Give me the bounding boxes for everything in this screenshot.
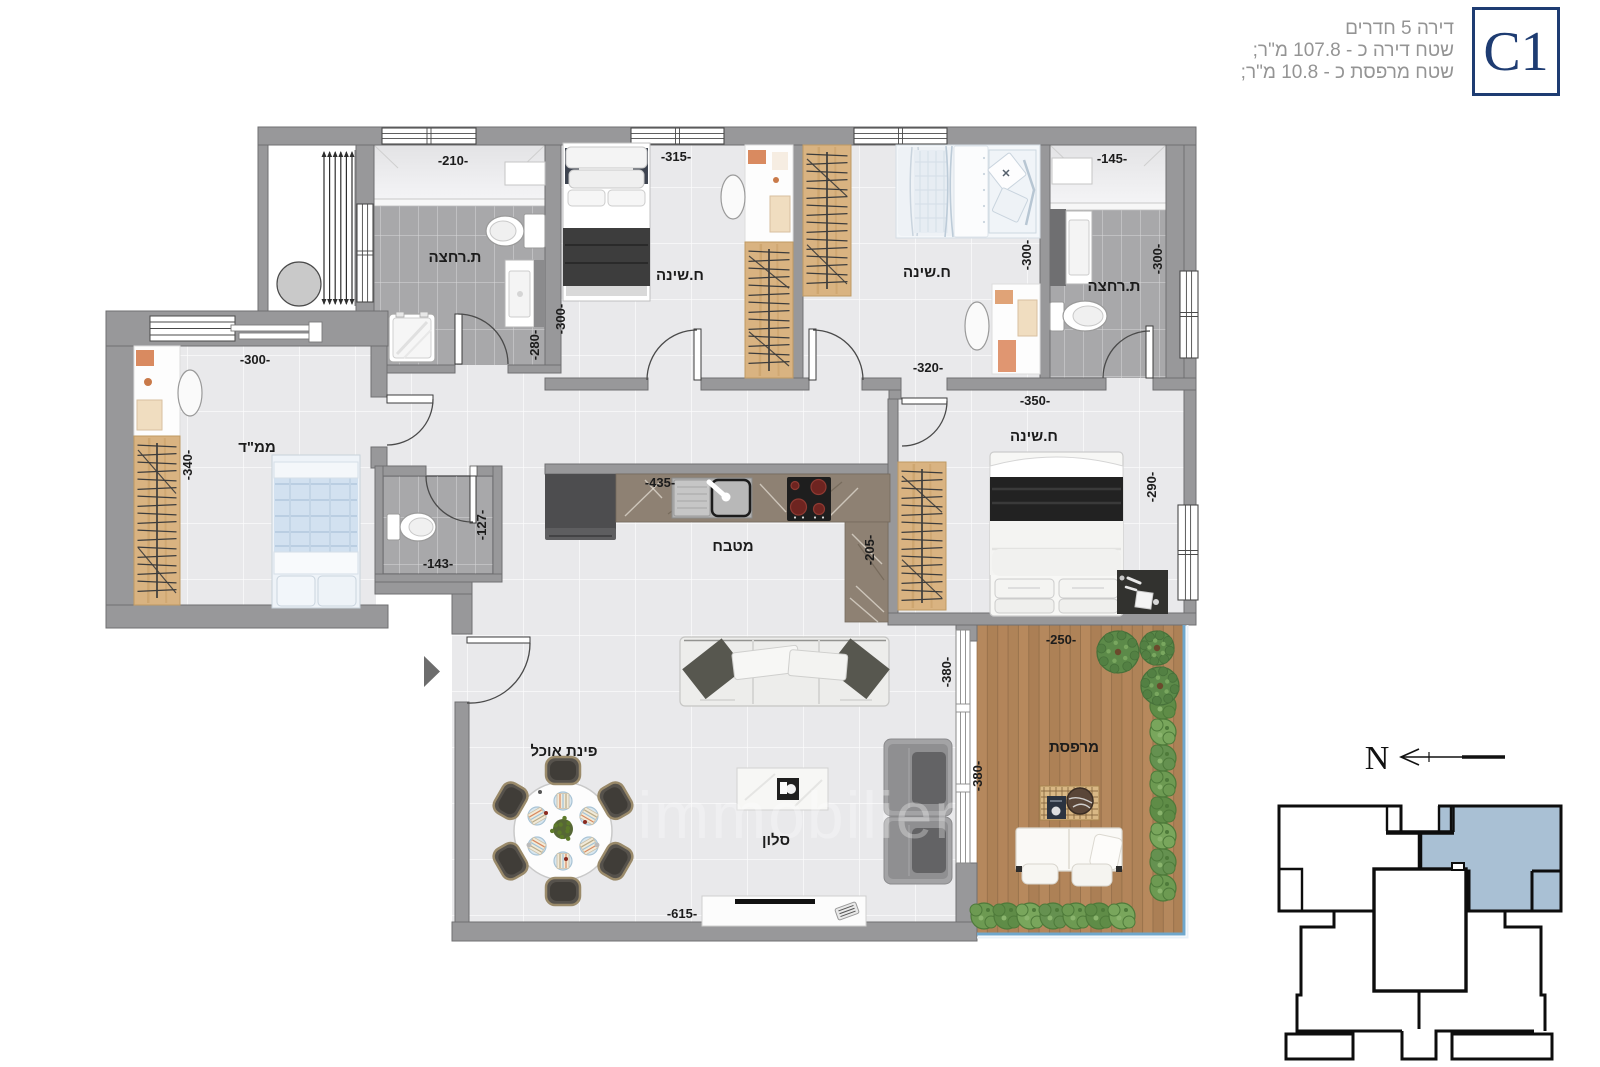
svg-text:סלון: סלון bbox=[762, 832, 790, 849]
svg-text:-350-: -350- bbox=[1020, 393, 1050, 408]
svg-text:-615-: -615- bbox=[667, 906, 697, 921]
svg-text:-290-: -290- bbox=[1144, 472, 1159, 502]
svg-text:-250-: -250- bbox=[1046, 632, 1076, 647]
svg-text:-315-: -315- bbox=[661, 149, 691, 164]
svg-text:ממ"ד: ממ"ד bbox=[238, 439, 276, 456]
svg-text:ת.רחצה: ת.רחצה bbox=[429, 249, 482, 266]
svg-text:מטבח: מטבח bbox=[712, 538, 753, 555]
svg-text:ח.שינה: ח.שינה bbox=[656, 267, 704, 284]
svg-text:-320-: -320- bbox=[913, 360, 943, 375]
svg-text:-300-: -300- bbox=[1019, 240, 1034, 270]
svg-text:-280-: -280- bbox=[527, 330, 542, 360]
svg-text:פינת אוכל: פינת אוכל bbox=[530, 743, 597, 760]
svg-text:מרפסת: מרפסת bbox=[1049, 739, 1099, 756]
svg-text:ת.רחצה: ת.רחצה bbox=[1088, 278, 1141, 295]
svg-text:-145-: -145- bbox=[1097, 151, 1127, 166]
svg-text:-143-: -143- bbox=[423, 556, 453, 571]
svg-text:-300-: -300- bbox=[1150, 244, 1165, 274]
svg-text:-205-: -205- bbox=[862, 535, 877, 565]
svg-text:-210-: -210- bbox=[438, 153, 468, 168]
svg-text:-127-: -127- bbox=[474, 510, 489, 540]
svg-text:-435-: -435- bbox=[645, 475, 675, 490]
svg-text:-380-: -380- bbox=[939, 657, 954, 687]
svg-text:-380-: -380- bbox=[970, 761, 985, 791]
svg-text:ח.שינה: ח.שינה bbox=[1010, 428, 1058, 445]
svg-text:N: N bbox=[1365, 740, 1390, 777]
svg-text:ח.שינה: ח.שינה bbox=[903, 264, 951, 281]
svg-text:-300-: -300- bbox=[553, 304, 568, 334]
svg-text:-300-: -300- bbox=[240, 352, 270, 367]
svg-text:-340-: -340- bbox=[180, 450, 195, 480]
